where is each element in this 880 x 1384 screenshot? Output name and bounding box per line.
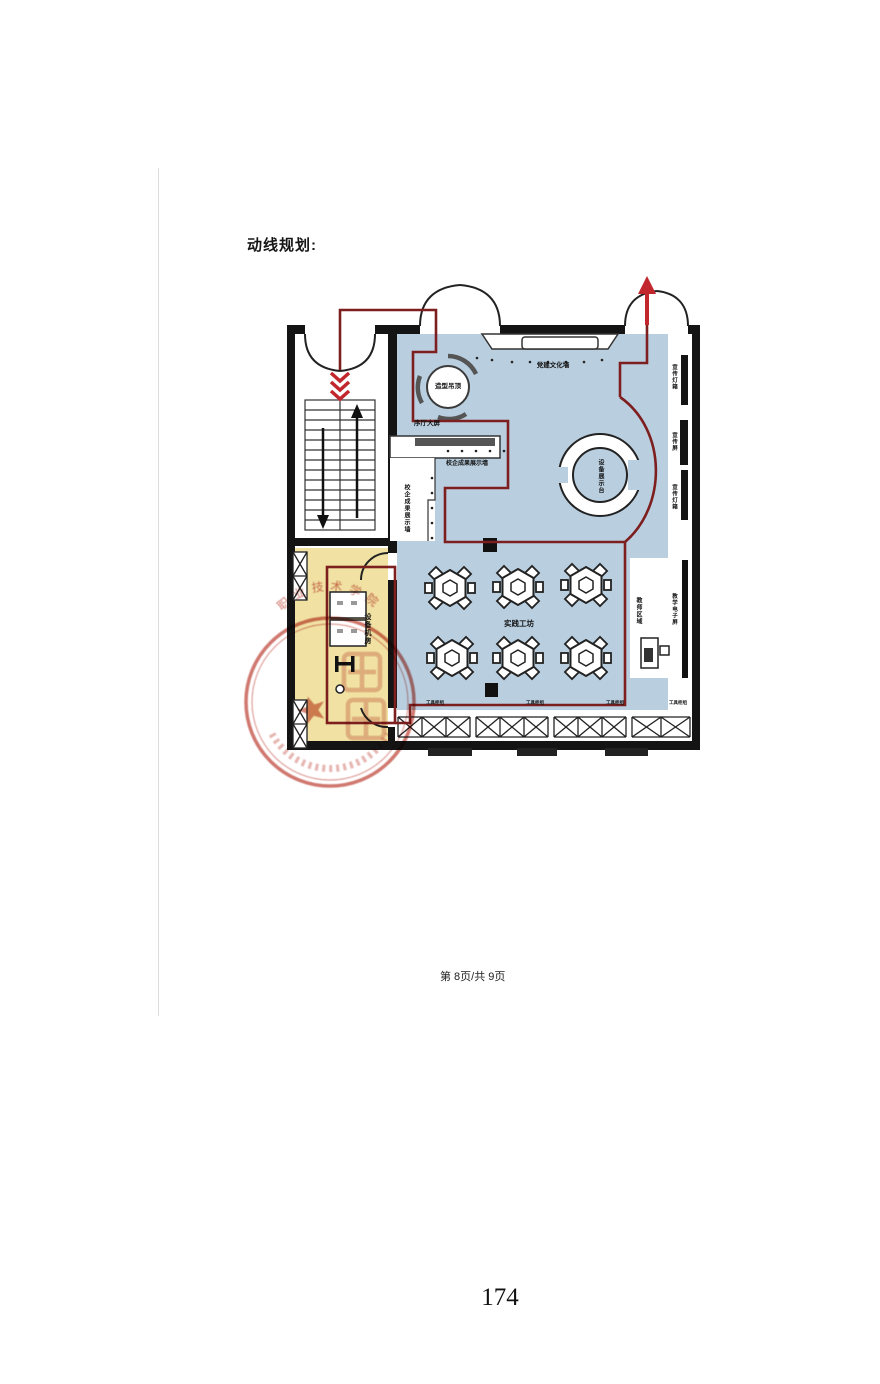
- label-tool-cabinet-2: 工具柜组: [515, 700, 555, 705]
- label-lobby-screen: 序厅大屏: [402, 420, 452, 427]
- exit-arrow: [638, 276, 656, 325]
- section-title: 动线规划:: [247, 234, 317, 255]
- floor-areas: [295, 334, 692, 741]
- floor-plan-drawing: 职业技术学院: [230, 270, 720, 800]
- staircase: [305, 400, 375, 530]
- label-teacher-area: 教师区域: [634, 590, 643, 632]
- tool-cabinets: [395, 710, 692, 756]
- label-tool-cabinet-4: 工具柜组: [658, 700, 698, 705]
- label-achievement-wall-horizontal: 校企成果展示墙: [427, 461, 507, 468]
- label-tool-cabinet-3: 工具柜组: [595, 700, 635, 705]
- page-indicator: 第 8页/共 9页: [440, 968, 570, 984]
- label-teaching-screen: 教学电子屏: [670, 582, 678, 636]
- main-entrance-door: [420, 285, 500, 326]
- party-culture-wall-niche: [482, 334, 618, 349]
- label-promo-lightbox-bottom: 宣传灯箱: [670, 472, 678, 522]
- label-tool-cabinet-1: 工具柜组: [415, 700, 455, 705]
- page-number: 174: [455, 1284, 545, 1312]
- label-equipment-machine-room: 设备机房: [362, 602, 372, 656]
- label-party-culture-wall: 党建文化墙: [513, 362, 593, 369]
- label-practice-workshop: 实践工坊: [489, 620, 549, 629]
- floor-plan: 职业技术学院 造型吊顶 序厅大屏 校企成果展示墙 校企成果展示墙 党建文化墙 宣…: [230, 270, 720, 800]
- label-shaped-ceiling: 造型吊顶: [426, 383, 470, 390]
- document-page: 动线规划:: [0, 0, 880, 1384]
- page-margin-line: [158, 168, 159, 1016]
- label-equipment-display: 设备展示台: [596, 447, 605, 505]
- label-promo-lightbox-top: 宣传灯箱: [670, 352, 678, 402]
- label-promo-screen: 宣传屏: [670, 422, 678, 462]
- side-exit-door: [625, 291, 688, 326]
- label-achievement-wall-vertical: 校企成果展示墙: [402, 470, 411, 546]
